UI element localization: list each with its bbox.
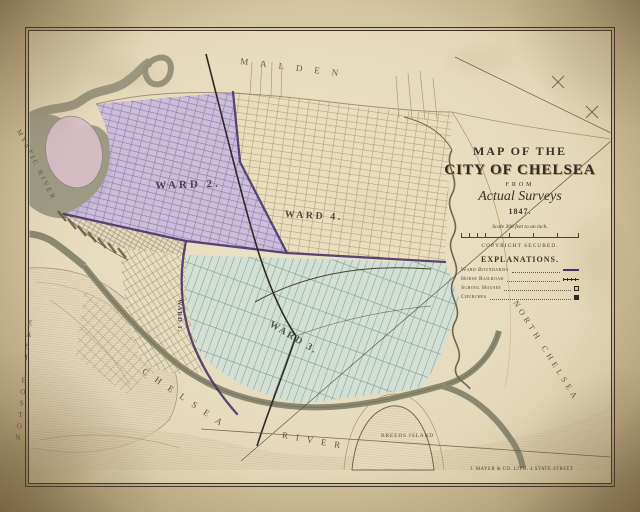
legend-leader — [490, 295, 571, 300]
title-block: MAP OF THE CITY OF CHELSEA FROM Actual S… — [437, 144, 603, 300]
map-sheet: MALDEN MYSTIC RIVER EAST BOSTON NORTH CH… — [0, 0, 640, 512]
map-title-line2: CITY OF CHELSEA — [437, 162, 603, 179]
lithographer-credit: J. MAYER & CO. LITH. 4 STATE STREET — [470, 467, 574, 472]
legend-label: Horse Railroad — [461, 276, 504, 282]
legend-leader — [512, 268, 560, 273]
ward-boundary-symbol — [563, 269, 579, 271]
legend-label: Churches — [461, 294, 487, 300]
legend-label: School Houses — [461, 285, 501, 291]
legend-leader — [504, 286, 571, 291]
railroad-symbol — [563, 278, 579, 281]
label-ward-2: WARD 2. — [155, 178, 221, 192]
map-title-from: FROM — [437, 182, 603, 188]
copyright-note: COPYRIGHT SECURED. — [437, 243, 603, 249]
explanations-heading: EXPLANATIONS. — [437, 255, 603, 264]
map-title-year: 1847. — [437, 207, 603, 216]
legend-leader — [507, 277, 560, 282]
scale-bar — [461, 231, 579, 238]
legend-row-school-houses: School Houses — [461, 285, 579, 291]
map-title-surveys: Actual Surveys — [437, 189, 603, 205]
school-house-symbol — [574, 286, 579, 291]
legend-row-churches: Churches — [461, 294, 579, 300]
map-title-line1: MAP OF THE — [437, 144, 603, 159]
legend-row-horse-railroad: Horse Railroad — [461, 276, 579, 282]
label-breeds-island: BREEDS ISLAND — [381, 433, 434, 439]
legend: Ward Boundaries Horse Railroad School Ho… — [461, 267, 579, 300]
scale-label: Scale 300 feet to an inch. — [437, 224, 603, 230]
church-symbol — [574, 295, 579, 300]
label-ward-1: WARD 1. — [176, 299, 183, 332]
legend-label: Ward Boundaries — [461, 267, 509, 273]
legend-row-ward-boundaries: Ward Boundaries — [461, 267, 579, 273]
